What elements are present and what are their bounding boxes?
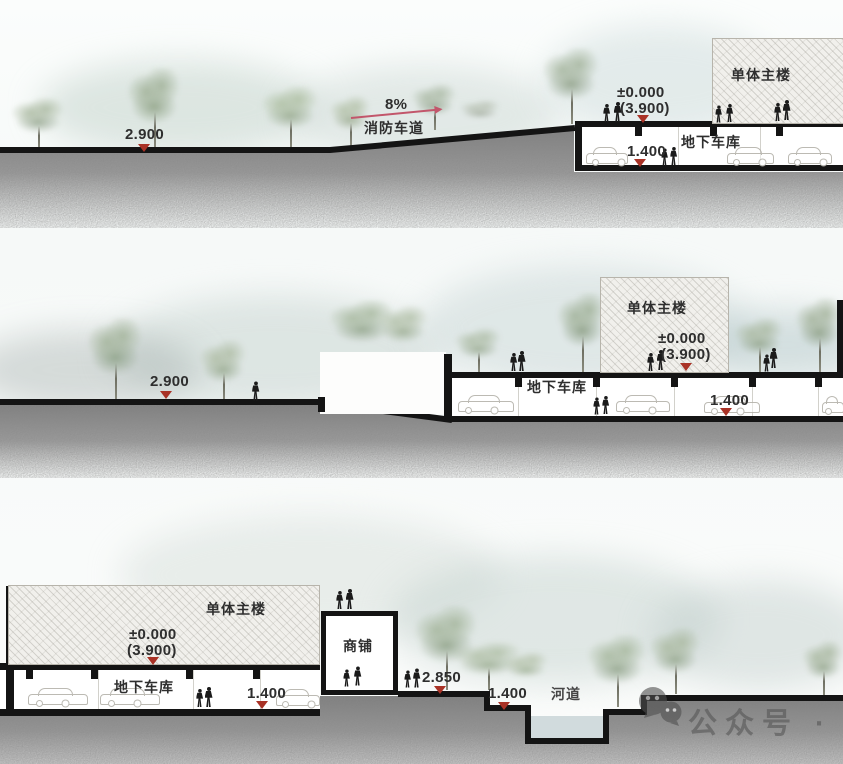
sky-wash [650,580,843,690]
elevation-label: 2.900 [125,127,164,143]
site-section-diagram: 单体主楼 8% 消防车道 2.900 ±0.000 (3.900) 地下车库 1… [0,0,843,764]
person-icon [768,348,779,368]
tree-icon [88,318,142,402]
tree-icon [558,293,606,372]
garage-label: 地下车库 [681,135,741,150]
tree-icon [200,340,246,402]
person-icon [725,104,735,122]
person-icon [342,670,351,687]
tree-icon [262,86,318,148]
tree-icon [455,642,521,690]
person-icon [516,351,527,371]
elevation-label: ±0.000 [129,627,177,643]
river-label: 河道 [551,687,581,702]
person-icon [203,687,214,707]
column [26,670,33,679]
sky-wash [40,60,320,155]
elevation-marker-icon [634,159,646,167]
elevation-marker-icon [256,701,268,709]
elevation-label: 2.900 [150,374,189,390]
tree-icon [796,298,842,372]
wechat-icon [636,684,686,732]
column [776,127,783,136]
elevation-marker-icon [138,144,150,152]
elevation-label: 1.400 [247,686,286,702]
elevation-marker-icon [720,408,732,416]
elevation-label: (3.900) [661,347,711,363]
elevation-marker-icon [637,115,649,123]
elevation-label: 1.400 [710,393,749,409]
tree-icon [543,48,599,124]
sky-wash [290,65,560,165]
tree-icon [12,98,64,150]
building-label: 单体主楼 [731,68,791,83]
garage-label: 地下车库 [114,680,174,695]
elevation-marker-icon [147,657,159,665]
person-icon [781,100,792,120]
car-icon [616,401,670,412]
watermark-text: 公众号 · 华 [688,700,843,742]
person-icon [250,382,260,401]
tree-icon [803,641,843,697]
building-label: 单体主楼 [627,301,687,316]
elevation-label: ±0.000 [658,331,706,347]
slope-label: 8% [385,97,407,113]
grid-line [98,670,99,709]
elevation-label: 1.400 [488,686,527,702]
car-icon [100,694,160,705]
car-icon [586,153,628,164]
car-icon [727,153,774,164]
column [515,378,522,387]
column [635,127,642,136]
person-icon [602,104,612,122]
elevation-marker-icon [434,686,446,694]
shop-label: 商铺 [343,639,373,654]
person-icon [352,667,362,686]
elevation-label: 2.850 [422,670,461,686]
person-icon [714,106,723,123]
elevation-label: ±0.000 [617,85,665,101]
person-icon [411,669,421,688]
sky-wash [390,555,720,685]
column [671,378,678,387]
car-icon [788,153,832,164]
column [593,378,600,387]
fire-lane-label: 消防车道 [364,121,424,136]
elevation-marker-icon [160,391,172,399]
person-icon [335,591,345,609]
ramp-enclosure [320,352,446,414]
person-icon [669,147,679,165]
car-icon [28,694,88,705]
car-icon [458,401,514,412]
column [91,670,98,679]
edge-wall [837,300,843,374]
person-icon [344,589,355,609]
column [815,378,822,387]
person-icon [646,353,656,371]
person-icon [601,396,611,414]
elevation-marker-icon [498,702,510,710]
tree-icon [460,100,500,128]
car-icon [822,402,843,413]
column [186,670,193,679]
column [749,378,756,387]
building-label: 单体主楼 [206,602,266,617]
garage-wall [444,354,452,422]
column [253,670,260,679]
ramp-wall-stub [318,397,325,412]
tree-icon [455,328,501,372]
garage-label: 地下车库 [527,380,587,395]
elevation-marker-icon [680,363,692,371]
elevation-label: 1.400 [627,144,666,160]
